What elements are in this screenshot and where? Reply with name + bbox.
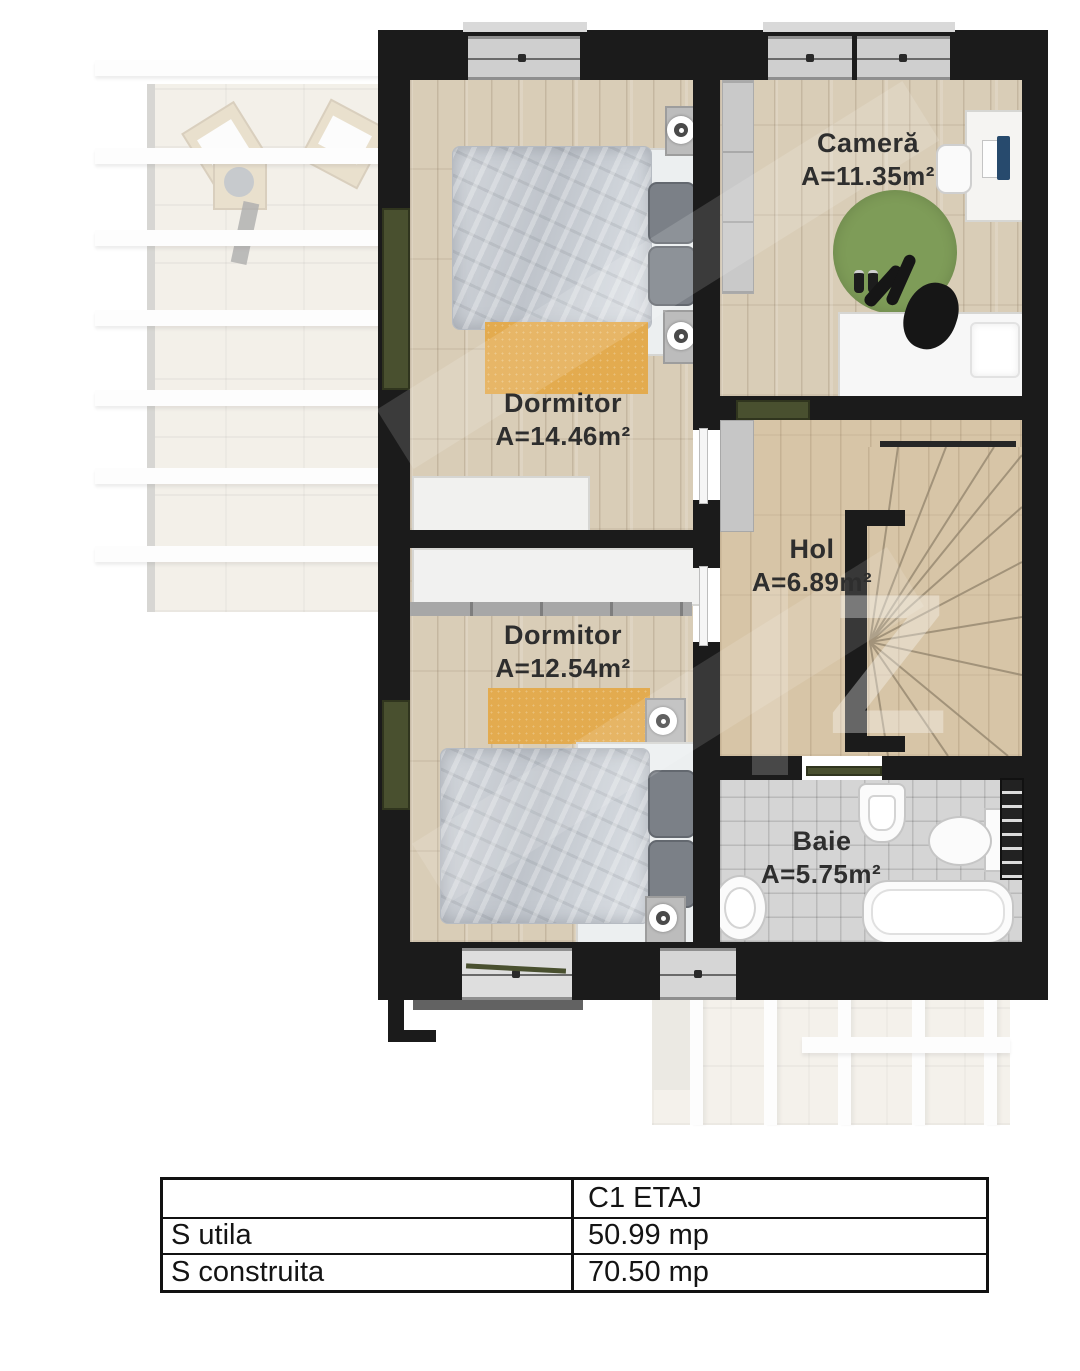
wall-dormitor2-hol [693,548,720,568]
table-row-label: S construita [163,1253,571,1290]
pergola-slat [95,230,425,246]
room-area-baie: A=5.75m² [761,859,881,890]
desk-chair [936,144,972,194]
toilet [928,816,992,866]
room-area-dormitor-2: A=12.54m² [495,653,630,684]
window [660,948,736,1000]
pergola-slat [95,390,425,406]
window [768,36,852,80]
pergola-slat [95,546,425,562]
table-cell-header: C1 ETAJ [571,1180,986,1217]
stair-newel-wall [845,510,905,526]
pergola-slat [690,985,703,1125]
floor-plan-canvas: Z Cameră A=11.35m² Dormitor A=14.46m² Ho… [0,0,1080,1371]
room-label-baie: Baie [792,826,851,857]
terrace-bottom [652,985,1010,1125]
sink [858,783,906,843]
towel-radiator [1000,778,1024,880]
wardrobe-sliding-doors [400,602,692,616]
bidet [713,875,767,941]
laptop-icon [982,140,998,178]
stair-edge [880,441,1016,447]
terrace-paving [652,985,1010,1125]
table-row-label: S utila [163,1217,571,1254]
room-area-dormitor-1: A=14.46m² [495,421,630,452]
window [468,36,580,80]
bathtub [862,880,1014,944]
wall-right [1022,30,1048,1000]
balcony-door [462,948,572,1000]
daybed-pillow [970,322,1020,378]
bed-pillow [648,770,696,838]
table-top [224,167,254,197]
camera-door [736,400,810,420]
pergola-slat [95,148,425,164]
pergola-slat [95,468,425,484]
wall-left [378,30,410,1000]
lamp-icon [649,904,677,932]
shoes [854,270,864,293]
lamp-icon [667,322,695,350]
wardrobe [412,548,704,606]
pergola-slat [764,985,777,1125]
table-row-value: 50.99 mp [571,1217,986,1254]
pergola-beam [802,1037,1010,1053]
pergola-slat [95,310,425,326]
lamp-icon [667,116,695,144]
patio-table [213,158,267,210]
room-label-dormitor-2: Dormitor [504,620,622,651]
balcony-rail [388,1030,436,1042]
table-row-value: 70.50 mp [571,1253,986,1290]
pergola-slat [838,985,851,1125]
door-leaf [699,428,708,504]
table-cell-empty [163,1180,571,1217]
room-label-dormitor-1: Dormitor [504,388,622,419]
room-area-hol: A=6.89m² [752,567,872,598]
room-area-camera: A=11.35m² [801,161,935,192]
window [857,36,950,80]
floor-plan: Z Cameră A=11.35m² Dormitor A=14.46m² Ho… [378,30,1048,1000]
watermark-streak [752,585,788,775]
terrace-left [95,60,425,612]
room-label-camera: Cameră [817,128,919,159]
door-leaf [699,566,708,646]
pergola-slat [984,985,997,1125]
balcony-door-green [382,208,410,390]
pergola-slat [95,60,425,76]
window-sill [763,22,955,32]
room-label-hol: Hol [790,534,835,565]
pergola-slat [912,985,925,1125]
summary-table: C1 ETAJ S utila 50.99 mp S construita 70… [160,1177,989,1293]
balcony-door-green [382,700,410,810]
laptop-screen [997,136,1010,180]
wardrobe [412,476,590,534]
wall-between-bedrooms [378,530,720,548]
bidet-basin [724,887,756,929]
duct-closet [720,420,754,532]
sink-basin [868,795,896,831]
window-sill [463,22,587,32]
bathtub-basin [871,889,1005,935]
